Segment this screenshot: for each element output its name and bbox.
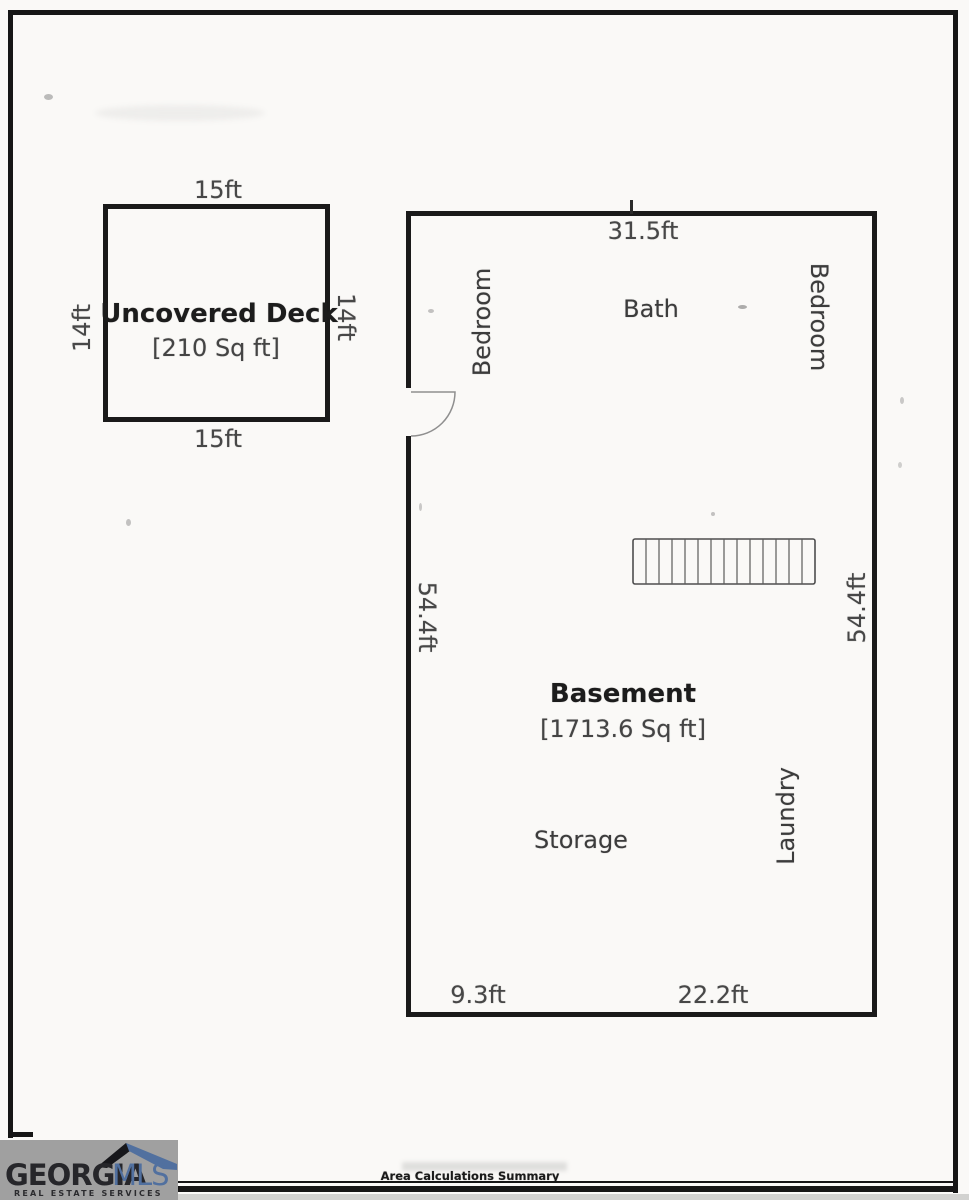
- footer-rule-thick: [178, 1186, 958, 1192]
- logo-tagline: REAL ESTATE SERVICES: [14, 1189, 163, 1198]
- basement-dimension-right: 54.4ft: [843, 573, 871, 644]
- basement-dimension-bottom-right: 22.2ft: [678, 981, 749, 1009]
- page-frame-left: [8, 10, 13, 1138]
- scan-speck: [900, 397, 904, 404]
- basement-label: Basement: [550, 679, 696, 709]
- logo-brand-secondary: MLS: [112, 1158, 169, 1192]
- page-frame-bottom-stub: [8, 1132, 33, 1137]
- scan-speck: [898, 462, 902, 468]
- staircase: [632, 538, 816, 585]
- scan-speck: [126, 519, 131, 526]
- deck-dimension-top: 15ft: [194, 176, 242, 204]
- page-frame-top: [8, 10, 958, 15]
- room-label-bedroom-right: Bedroom: [805, 263, 833, 372]
- room-label-bedroom-left: Bedroom: [468, 268, 496, 377]
- room-label-storage: Storage: [534, 826, 628, 854]
- footer-table-strip: [178, 1194, 969, 1200]
- room-label-laundry: Laundry: [772, 767, 800, 865]
- deck-dimension-bottom: 15ft: [194, 425, 242, 453]
- basement-dimension-left: 54.4ft: [413, 582, 441, 653]
- deck-label: Uncovered Deck: [100, 299, 338, 329]
- deck-area-value: [210 Sq ft]: [152, 334, 280, 362]
- dimension-tick-mark: [630, 200, 633, 214]
- page-frame-right: [953, 10, 958, 1193]
- basement-area-value: [1713.6 Sq ft]: [540, 715, 706, 743]
- footer-rule-thin: [178, 1181, 958, 1183]
- deck-dimension-left: 14ft: [68, 304, 96, 352]
- basement-dimension-bottom-left: 9.3ft: [450, 981, 506, 1009]
- scan-speck: [44, 94, 53, 100]
- georgia-mls-logo: GEORGIA MLS REAL ESTATE SERVICES: [0, 1140, 178, 1200]
- scan-smudge: [95, 105, 265, 121]
- room-label-bath: Bath: [623, 295, 679, 323]
- basement-dimension-top: 31.5ft: [608, 217, 679, 245]
- door-swing-arc: [409, 386, 465, 442]
- area-calculations-page: 15ft 15ft 14ft 14ft Uncovered Deck [210 …: [0, 0, 969, 1200]
